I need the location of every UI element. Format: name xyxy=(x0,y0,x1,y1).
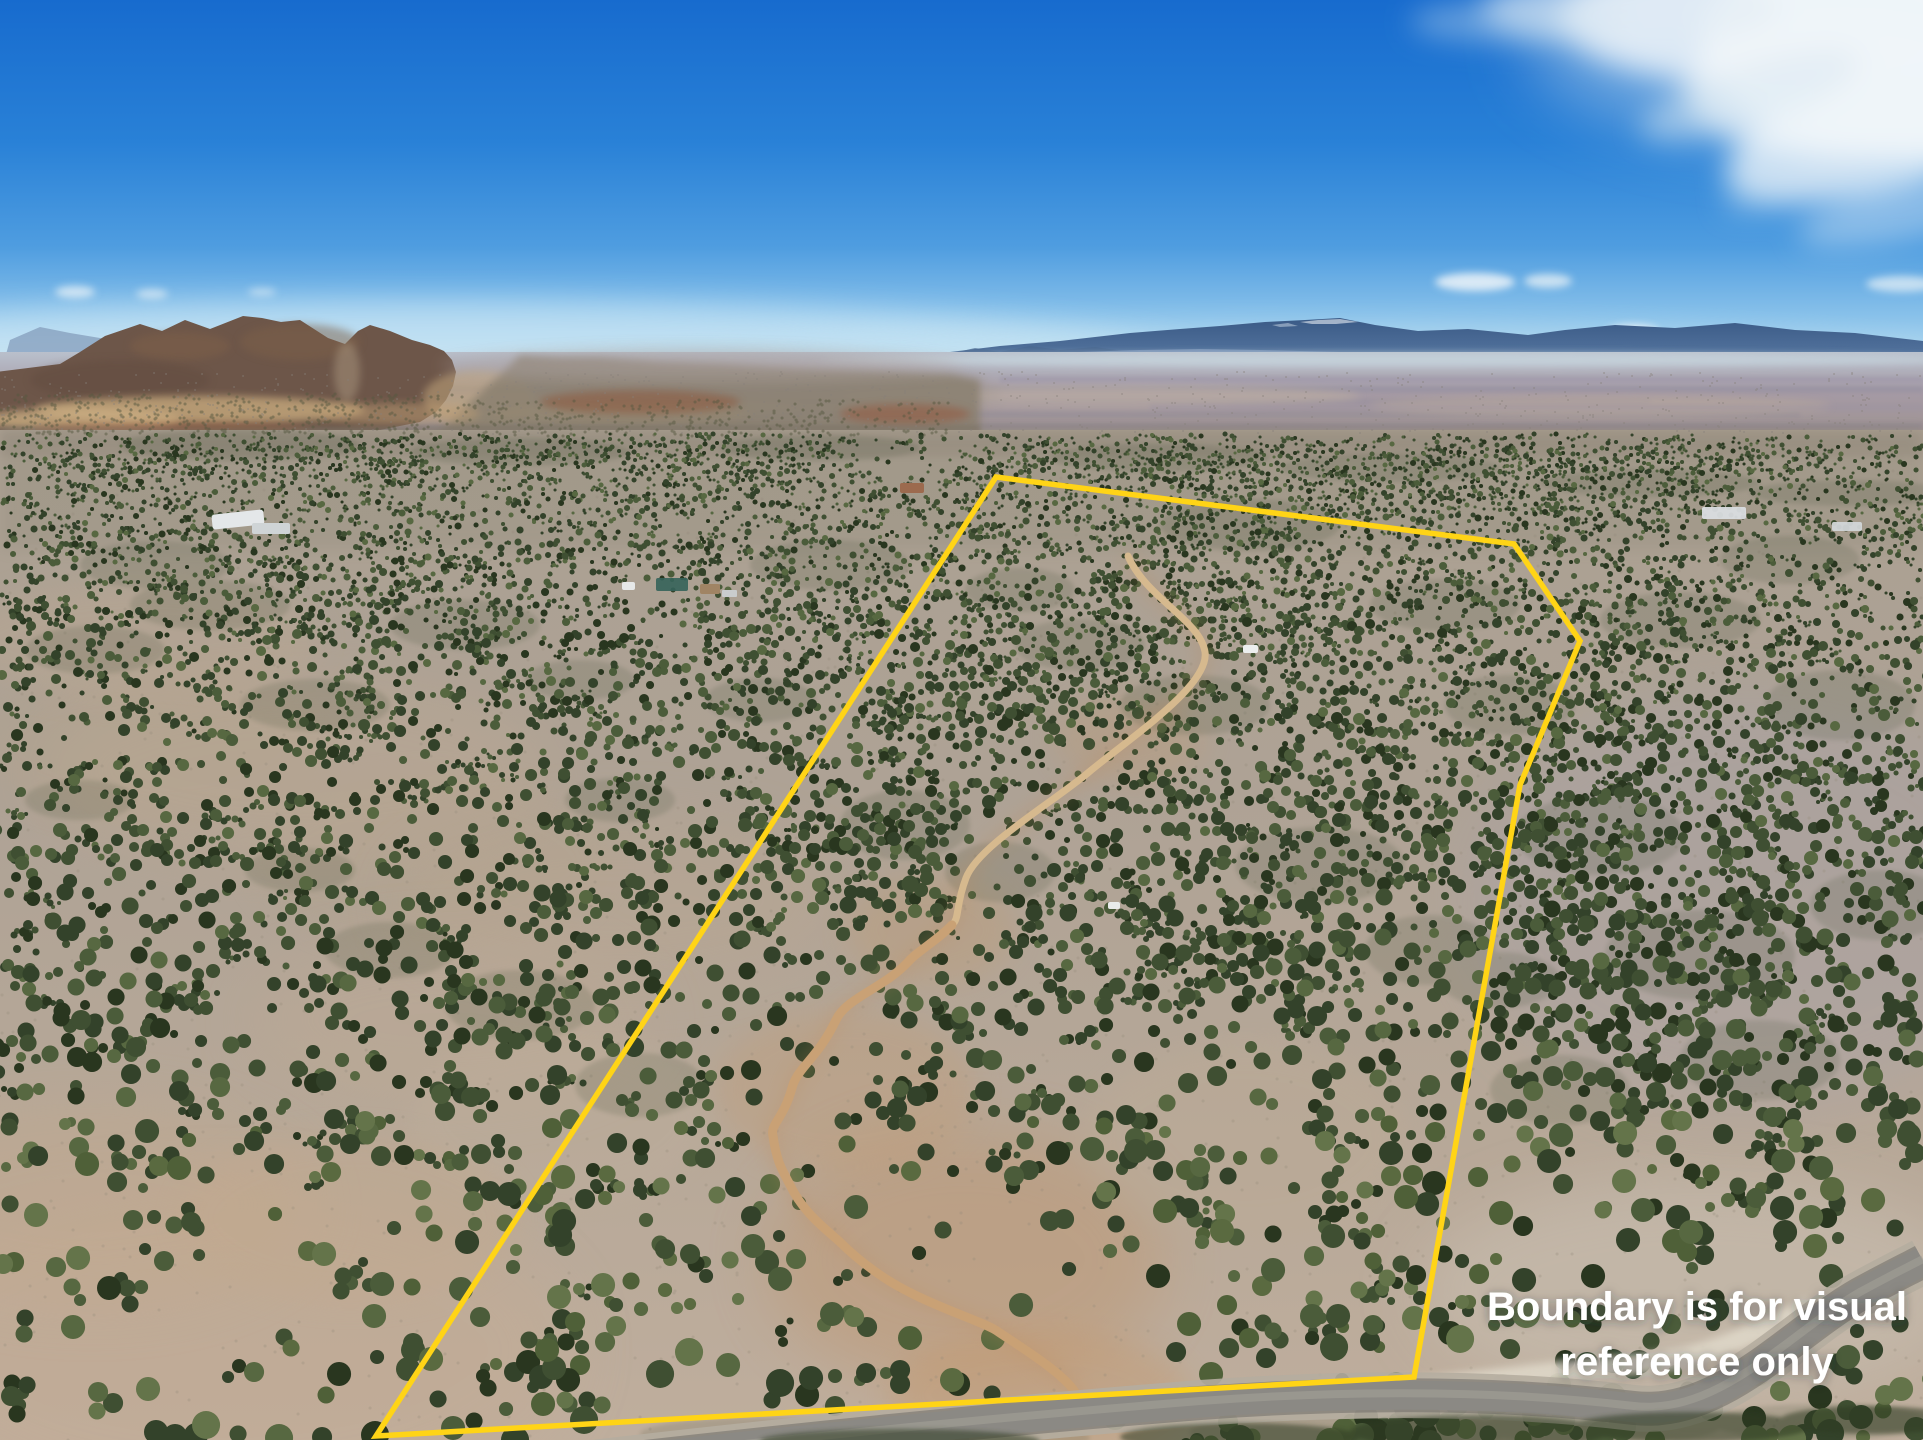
svg-text:reference only: reference only xyxy=(1560,1340,1834,1384)
svg-text:Boundary is for visual: Boundary is for visual xyxy=(1487,1285,1907,1329)
